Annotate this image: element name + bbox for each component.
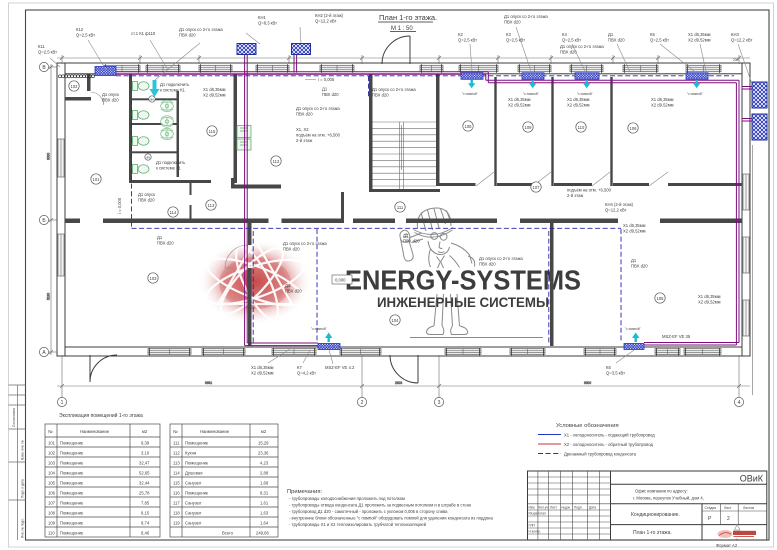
svg-text:Д1 опуск: Д1 опуск [138, 192, 155, 197]
svg-text:ПВХ d20: ПВХ d20 [179, 33, 196, 38]
svg-text:Q=12,2 кВт: Q=12,2 кВт [315, 19, 337, 24]
svg-text:к системе К1: к системе К1 [160, 88, 186, 93]
svg-text:Помещение: Помещение [60, 521, 84, 526]
svg-text:102: 102 [48, 451, 56, 456]
svg-text:116: 116 [173, 491, 180, 496]
svg-text:ст.1 К1 ф110: ст.1 К1 ф110 [131, 31, 156, 36]
svg-text:ОВиК: ОВиК [740, 474, 764, 484]
svg-text:Помещение: Помещение [60, 501, 84, 506]
svg-text:Подп.: Подп. [574, 506, 583, 510]
svg-text:Q=8,3 кВт: Q=8,3 кВт [258, 21, 277, 26]
svg-text:Д1: Д1 [322, 87, 328, 92]
svg-text:Q=3,5 кВт: Q=3,5 кВт [606, 371, 625, 376]
svg-text:111: 111 [397, 205, 404, 210]
svg-text:Q=2,5 кВт: Q=2,5 кВт [506, 38, 525, 43]
svg-text:1,61: 1,61 [260, 501, 269, 506]
svg-text:107: 107 [533, 185, 541, 190]
svg-text:Кондиционирование.: Кондиционирование. [631, 512, 680, 518]
svg-text:№док.: №док. [562, 506, 571, 510]
svg-text:План 1-го этажа.: План 1-го этажа. [379, 13, 437, 22]
svg-text:112: 112 [273, 159, 280, 164]
svg-text:К2: К2 [458, 32, 463, 37]
svg-text:109: 109 [48, 521, 56, 526]
svg-text:ПВХ d20: ПВХ d20 [285, 289, 302, 294]
svg-text:32,47: 32,47 [139, 461, 150, 466]
svg-text:- внутренние блоки обозначенны: - внутренние блоки обозначенные "с помпо… [289, 516, 493, 521]
svg-text:г. Москва, переулок Учебный, д: г. Москва, переулок Учебный, дом 4, [633, 496, 704, 501]
svg-text:ГИП: ГИП [529, 524, 536, 528]
svg-text:X1 d6,35мм: X1 d6,35мм [651, 97, 674, 102]
svg-text:MSZ-EF VE 35: MSZ-EF VE 35 [662, 334, 691, 339]
svg-text:ПВХ d20: ПВХ d20 [479, 262, 496, 267]
svg-text:115: 115 [209, 129, 216, 134]
svg-text:Д1: Д1 [285, 283, 291, 288]
svg-text:К7: К7 [297, 365, 302, 370]
svg-text:Формат А2: Формат А2 [716, 543, 738, 548]
svg-text:15,29: 15,29 [258, 441, 269, 446]
svg-text:Д1 подключить: Д1 подключить [156, 160, 186, 165]
svg-text:Д1 опуск со 2-го этажа: Д1 опуск со 2-го этажа [479, 256, 523, 261]
svg-text:107: 107 [48, 501, 56, 506]
svg-text:9,39: 9,39 [141, 441, 150, 446]
svg-text:X1 d6,35мм: X1 d6,35мм [623, 223, 646, 228]
svg-text:8,15: 8,15 [141, 511, 150, 516]
svg-text:2,88: 2,88 [260, 471, 269, 476]
svg-text:1: 1 [61, 400, 64, 406]
svg-text:X2 d9,52мм: X2 d9,52мм [688, 38, 711, 43]
svg-text:К11: К11 [38, 44, 45, 49]
svg-text:2903: 2903 [395, 381, 402, 385]
svg-text:Санузел: Санузел [185, 481, 202, 486]
svg-text:X1 d6,35мм: X1 d6,35мм [688, 32, 711, 37]
svg-text:Листов: Листов [743, 506, 754, 510]
svg-text:Помещение: Помещение [60, 511, 84, 516]
svg-text:Всего: Всего [222, 531, 234, 536]
svg-text:Дата: Дата [589, 506, 596, 510]
svg-text:- трубопроводы отвода конденса: - трубопроводы отвода конденсата Д1 прол… [289, 503, 472, 508]
svg-text:X2 d9,52мм: X2 d9,52мм [508, 103, 531, 108]
svg-text:113: 113 [173, 461, 180, 466]
svg-text:101: 101 [93, 177, 101, 182]
svg-text:Дренажный трубопровод конденса: Дренажный трубопровод конденсата [564, 452, 637, 457]
svg-text:Х1 - холодоноситель - подающий: Х1 - холодоноситель - подающий трубопров… [564, 433, 655, 438]
svg-text:1,68: 1,68 [260, 481, 269, 486]
svg-text:Q=12,2 кВт: Q=12,2 кВт [605, 208, 627, 213]
svg-text:i = 0,005: i = 0,005 [318, 77, 335, 82]
svg-text:119: 119 [173, 521, 180, 526]
svg-text:К6: К6 [606, 365, 611, 370]
svg-text:м2: м2 [142, 429, 148, 434]
svg-text:Санузел: Санузел [185, 511, 202, 516]
svg-text:Лист: Лист [724, 506, 732, 510]
svg-text:X1, X2: X1, X2 [567, 182, 580, 187]
svg-text:8,46: 8,46 [141, 531, 150, 536]
svg-text:Д1 опуск со 2-го этажа: Д1 опуск со 2-го этажа [560, 44, 604, 49]
svg-text:к системе К1: к системе К1 [156, 166, 182, 171]
svg-text:117: 117 [173, 501, 180, 506]
svg-text:X1 d6,35мм: X1 d6,35мм [508, 97, 531, 102]
svg-text:- трубопровод Д1 d20 - самотеч: - трубопровод Д1 d20 - самотечный - прол… [289, 509, 448, 514]
svg-text:- трубопроводы Х1 и Х2 теплоиз: - трубопроводы Х1 и Х2 теплоизолировать … [289, 522, 427, 527]
svg-text:113: 113 [208, 203, 215, 208]
svg-text:ENERGY-SYSTEMS: ENERGY-SYSTEMS [345, 265, 581, 296]
svg-text:Д1: Д1 [608, 32, 614, 37]
svg-text:103: 103 [150, 276, 158, 281]
svg-text:106: 106 [630, 126, 638, 131]
svg-text:КН4 (2-й этаж): КН4 (2-й этаж) [605, 202, 634, 207]
svg-text:Согласовано: Согласовано [12, 408, 16, 427]
svg-text:5190: 5190 [47, 293, 51, 300]
svg-text:К5: К5 [650, 32, 655, 37]
svg-text:"с помпой": "с помпой" [311, 327, 327, 331]
svg-text:114: 114 [170, 210, 177, 215]
svg-text:ИНЖЕНЕРНЫЕ СИСТЕМЫ: ИНЖЕНЕРНЫЕ СИСТЕМЫ [377, 294, 549, 310]
svg-text:"с помпой": "с помпой" [523, 92, 539, 96]
svg-text:Стадия: Стадия [705, 506, 717, 510]
svg-text:104: 104 [392, 318, 400, 323]
svg-text:Помещение: Помещение [60, 531, 84, 536]
svg-text:Взам. инв. №: Взам. инв. № [21, 440, 25, 460]
svg-text:Разработал: Разработал [529, 512, 546, 516]
svg-text:Q=2,5 кВт: Q=2,5 кВт [76, 33, 95, 38]
svg-text:9681: 9681 [205, 381, 212, 385]
svg-text:X2 d9,52мм: X2 d9,52мм [567, 103, 590, 108]
svg-text:Экспликация помещений 1-го: Экспликация помещений 1-го этажа [59, 412, 143, 419]
svg-text:i = 0,005: i = 0,005 [117, 197, 122, 214]
svg-text:Лист: Лист [550, 506, 557, 510]
svg-text:112: 112 [173, 451, 180, 456]
svg-text:118: 118 [173, 511, 180, 516]
svg-text:X1 d6,35мм: X1 d6,35мм [567, 97, 590, 102]
svg-text:X2 d9,52мм: X2 d9,52мм [203, 93, 226, 98]
svg-text:Помещение: Помещение [185, 491, 209, 496]
svg-text:102: 102 [71, 84, 79, 89]
svg-text:КН3: КН3 [731, 32, 739, 37]
svg-text:ПВХ d20: ПВХ d20 [608, 38, 625, 43]
svg-text:К12: К12 [76, 27, 84, 32]
svg-text:109: 109 [525, 125, 533, 130]
svg-text:Изм.: Изм. [529, 506, 536, 510]
svg-text:Санузел: Санузел [185, 521, 202, 526]
svg-text:Примечания:: Примечания: [287, 489, 322, 495]
svg-text:Душевая: Душевая [185, 471, 202, 476]
svg-text:Помещение: Помещение [60, 481, 84, 486]
svg-text:106: 106 [48, 491, 56, 496]
svg-text:110: 110 [48, 531, 55, 536]
svg-text:"с помпой": "с помпой" [577, 92, 593, 96]
svg-text:ПВХ d20: ПВХ d20 [631, 264, 648, 269]
svg-text:Д1 опуск со 2-го этажа: Д1 опуск со 2-го этажа [179, 27, 223, 32]
svg-text:м2: м2 [261, 429, 267, 434]
svg-text:Д1: Д1 [631, 258, 637, 263]
svg-text:2: 2 [727, 516, 730, 522]
svg-text:КН1: КН1 [258, 15, 266, 20]
svg-text:Q=2,5 кВт: Q=2,5 кВт [650, 38, 669, 43]
svg-text:Д1: Д1 [157, 235, 163, 240]
svg-text:104: 104 [48, 471, 56, 476]
svg-text:ПВХ d20: ПВХ d20 [296, 112, 313, 117]
svg-text:Наименование: Наименование [200, 429, 230, 434]
svg-text:К3: К3 [506, 32, 511, 37]
svg-text:Офис компании по а: Офис компании по адресу: [635, 489, 688, 494]
svg-text:8,31: 8,31 [260, 491, 269, 496]
svg-text:ПВХ d20: ПВХ d20 [560, 50, 577, 55]
svg-text:1,63: 1,63 [260, 511, 269, 516]
svg-text:23,36: 23,36 [258, 451, 269, 456]
svg-text:ПВХ d20: ПВХ d20 [102, 98, 119, 103]
svg-text:3: 3 [438, 400, 441, 406]
svg-text:Д1 опуск со 2-го этажа: Д1 опуск со 2-го этажа [283, 241, 327, 246]
svg-text:№: № [48, 429, 53, 434]
svg-text:Ф9: Ф9 [146, 156, 150, 160]
svg-text:ПВХ d20: ПВХ d20 [138, 198, 155, 203]
svg-text:9600: 9600 [584, 381, 591, 385]
svg-text:110: 110 [578, 125, 585, 130]
svg-text:2-й этаж: 2-й этаж [567, 193, 583, 198]
svg-text:32,44: 32,44 [139, 481, 150, 486]
svg-text:ПВХ d20: ПВХ d20 [372, 93, 389, 98]
svg-text:План 1-го этажа.: План 1-го этажа. [633, 530, 672, 536]
svg-text:ПВХ d20: ПВХ d20 [322, 92, 339, 97]
svg-text:Условные обозначения: Условные обозначения [556, 423, 619, 429]
svg-text:X2 d9,52мм: X2 d9,52мм [623, 229, 646, 234]
svg-text:Помещение: Помещение [60, 461, 84, 466]
svg-text:Д1 опуск со 2-го этажа: Д1 опуск со 2-го этажа [504, 14, 548, 19]
svg-text:Q=2,5 кВт: Q=2,5 кВт [38, 50, 57, 55]
svg-text:4,23: 4,23 [260, 461, 269, 466]
svg-text:108: 108 [48, 511, 56, 516]
svg-text:2-й этаж: 2-й этаж [296, 138, 312, 143]
svg-text:200: 200 [733, 58, 739, 62]
svg-text:Д1 опуск со 2-го этажа: Д1 опуск со 2-го этажа [372, 87, 416, 92]
svg-text:1,64: 1,64 [260, 521, 269, 526]
svg-text:Д1 подключить: Д1 подключить [160, 82, 190, 87]
svg-text:"с помпой": "с помпой" [687, 92, 703, 96]
svg-text:115: 115 [173, 481, 180, 486]
svg-text:ПВХ d20: ПВХ d20 [403, 239, 420, 244]
svg-text:Помещение: Помещение [60, 491, 84, 496]
svg-text:X2 d9,52мм: X2 d9,52мм [651, 103, 674, 108]
svg-text:108: 108 [465, 124, 473, 129]
svg-text:6000: 6000 [47, 153, 51, 160]
svg-text:25,78: 25,78 [139, 491, 150, 496]
svg-text:2: 2 [361, 400, 364, 406]
svg-text:105: 105 [48, 481, 56, 486]
svg-text:"с помпой": "с помпой" [462, 92, 478, 96]
svg-text:4: 4 [738, 400, 741, 406]
svg-text:"с помпой": "с помпой" [625, 327, 641, 331]
svg-text:Помещение: Помещение [185, 441, 209, 446]
svg-text:3,10: 3,10 [141, 451, 150, 456]
svg-text:X2 d9,52мм: X2 d9,52мм [251, 371, 274, 376]
svg-text:X1, X2: X1, X2 [296, 127, 309, 132]
svg-text:X1 d6,35мм: X1 d6,35мм [251, 365, 274, 370]
svg-text:111: 111 [173, 441, 180, 446]
svg-text:Помещение: Помещение [185, 461, 209, 466]
svg-text:Q=2,5 кВт: Q=2,5 кВт [562, 38, 581, 43]
svg-text:КН2 (2-й этаж): КН2 (2-й этаж) [315, 13, 344, 18]
svg-text:ПВХ d20: ПВХ d20 [283, 247, 300, 252]
svg-text:X1 d6,35мм: X1 d6,35мм [203, 87, 226, 92]
svg-text:Q=2,5 кВт: Q=2,5 кВт [458, 38, 477, 43]
svg-text:Ф6: Ф6 [150, 98, 154, 102]
svg-text:подъём на отм. +6,500: подъём на отм. +6,500 [296, 133, 341, 138]
svg-text:Д1: Д1 [403, 233, 409, 238]
svg-text:- трубопроводы холодоснабжения: - трубопроводы холодоснабжения проложить… [289, 496, 405, 501]
svg-text:Q=12,2 кВт: Q=12,2 кВт [731, 38, 753, 43]
svg-text:105: 105 [657, 296, 665, 301]
svg-text:К4: К4 [562, 32, 567, 37]
svg-text:X1 d6,35мм: X1 d6,35мм [698, 294, 721, 299]
svg-text:ПВХ d20: ПВХ d20 [157, 241, 174, 246]
svg-text:Q=4,2 кВт: Q=4,2 кВт [297, 371, 316, 376]
svg-text:8,74: 8,74 [141, 521, 150, 526]
svg-text:103: 103 [48, 461, 56, 466]
svg-text:Н.контр.: Н.контр. [529, 530, 541, 534]
svg-text:Помещение: Помещение [60, 471, 84, 476]
svg-text:Помещение: Помещение [60, 441, 84, 446]
svg-text:0,000: 0,000 [335, 278, 346, 283]
svg-text:Х2 - холодоноситель - обратный: Х2 - холодоноситель - обратный трубопров… [564, 442, 654, 447]
svg-text:Помещение: Помещение [60, 451, 84, 456]
svg-text:Инв. № подл.: Инв. № подл. [21, 518, 25, 538]
svg-text:MSZ-EF VE 4.2: MSZ-EF VE 4.2 [325, 365, 355, 370]
svg-text:Д1 опуск со 2-го этажа: Д1 опуск со 2-го этажа [296, 106, 340, 111]
svg-text:подъём на отм. +6,500: подъём на отм. +6,500 [567, 188, 612, 193]
svg-text:ПВХ d20: ПВХ d20 [504, 20, 521, 25]
svg-text:Д1 опуск: Д1 опуск [102, 92, 119, 97]
svg-text:X2 d9,52мм: X2 d9,52мм [698, 300, 721, 305]
svg-text:7,85: 7,85 [141, 501, 150, 506]
svg-text:52,65: 52,65 [139, 471, 150, 476]
svg-text:Подп. и дата: Подп. и дата [21, 479, 25, 498]
svg-text:101: 101 [48, 441, 56, 446]
svg-text:Санузел: Санузел [185, 501, 202, 506]
svg-text:Наименование: Наименование [80, 429, 110, 434]
svg-text:114: 114 [173, 471, 180, 476]
svg-text:Кухня: Кухня [185, 451, 196, 456]
svg-text:№: № [173, 429, 178, 434]
svg-text:Кол.уч: Кол.уч [539, 506, 549, 510]
svg-text:249,66: 249,66 [256, 531, 269, 536]
